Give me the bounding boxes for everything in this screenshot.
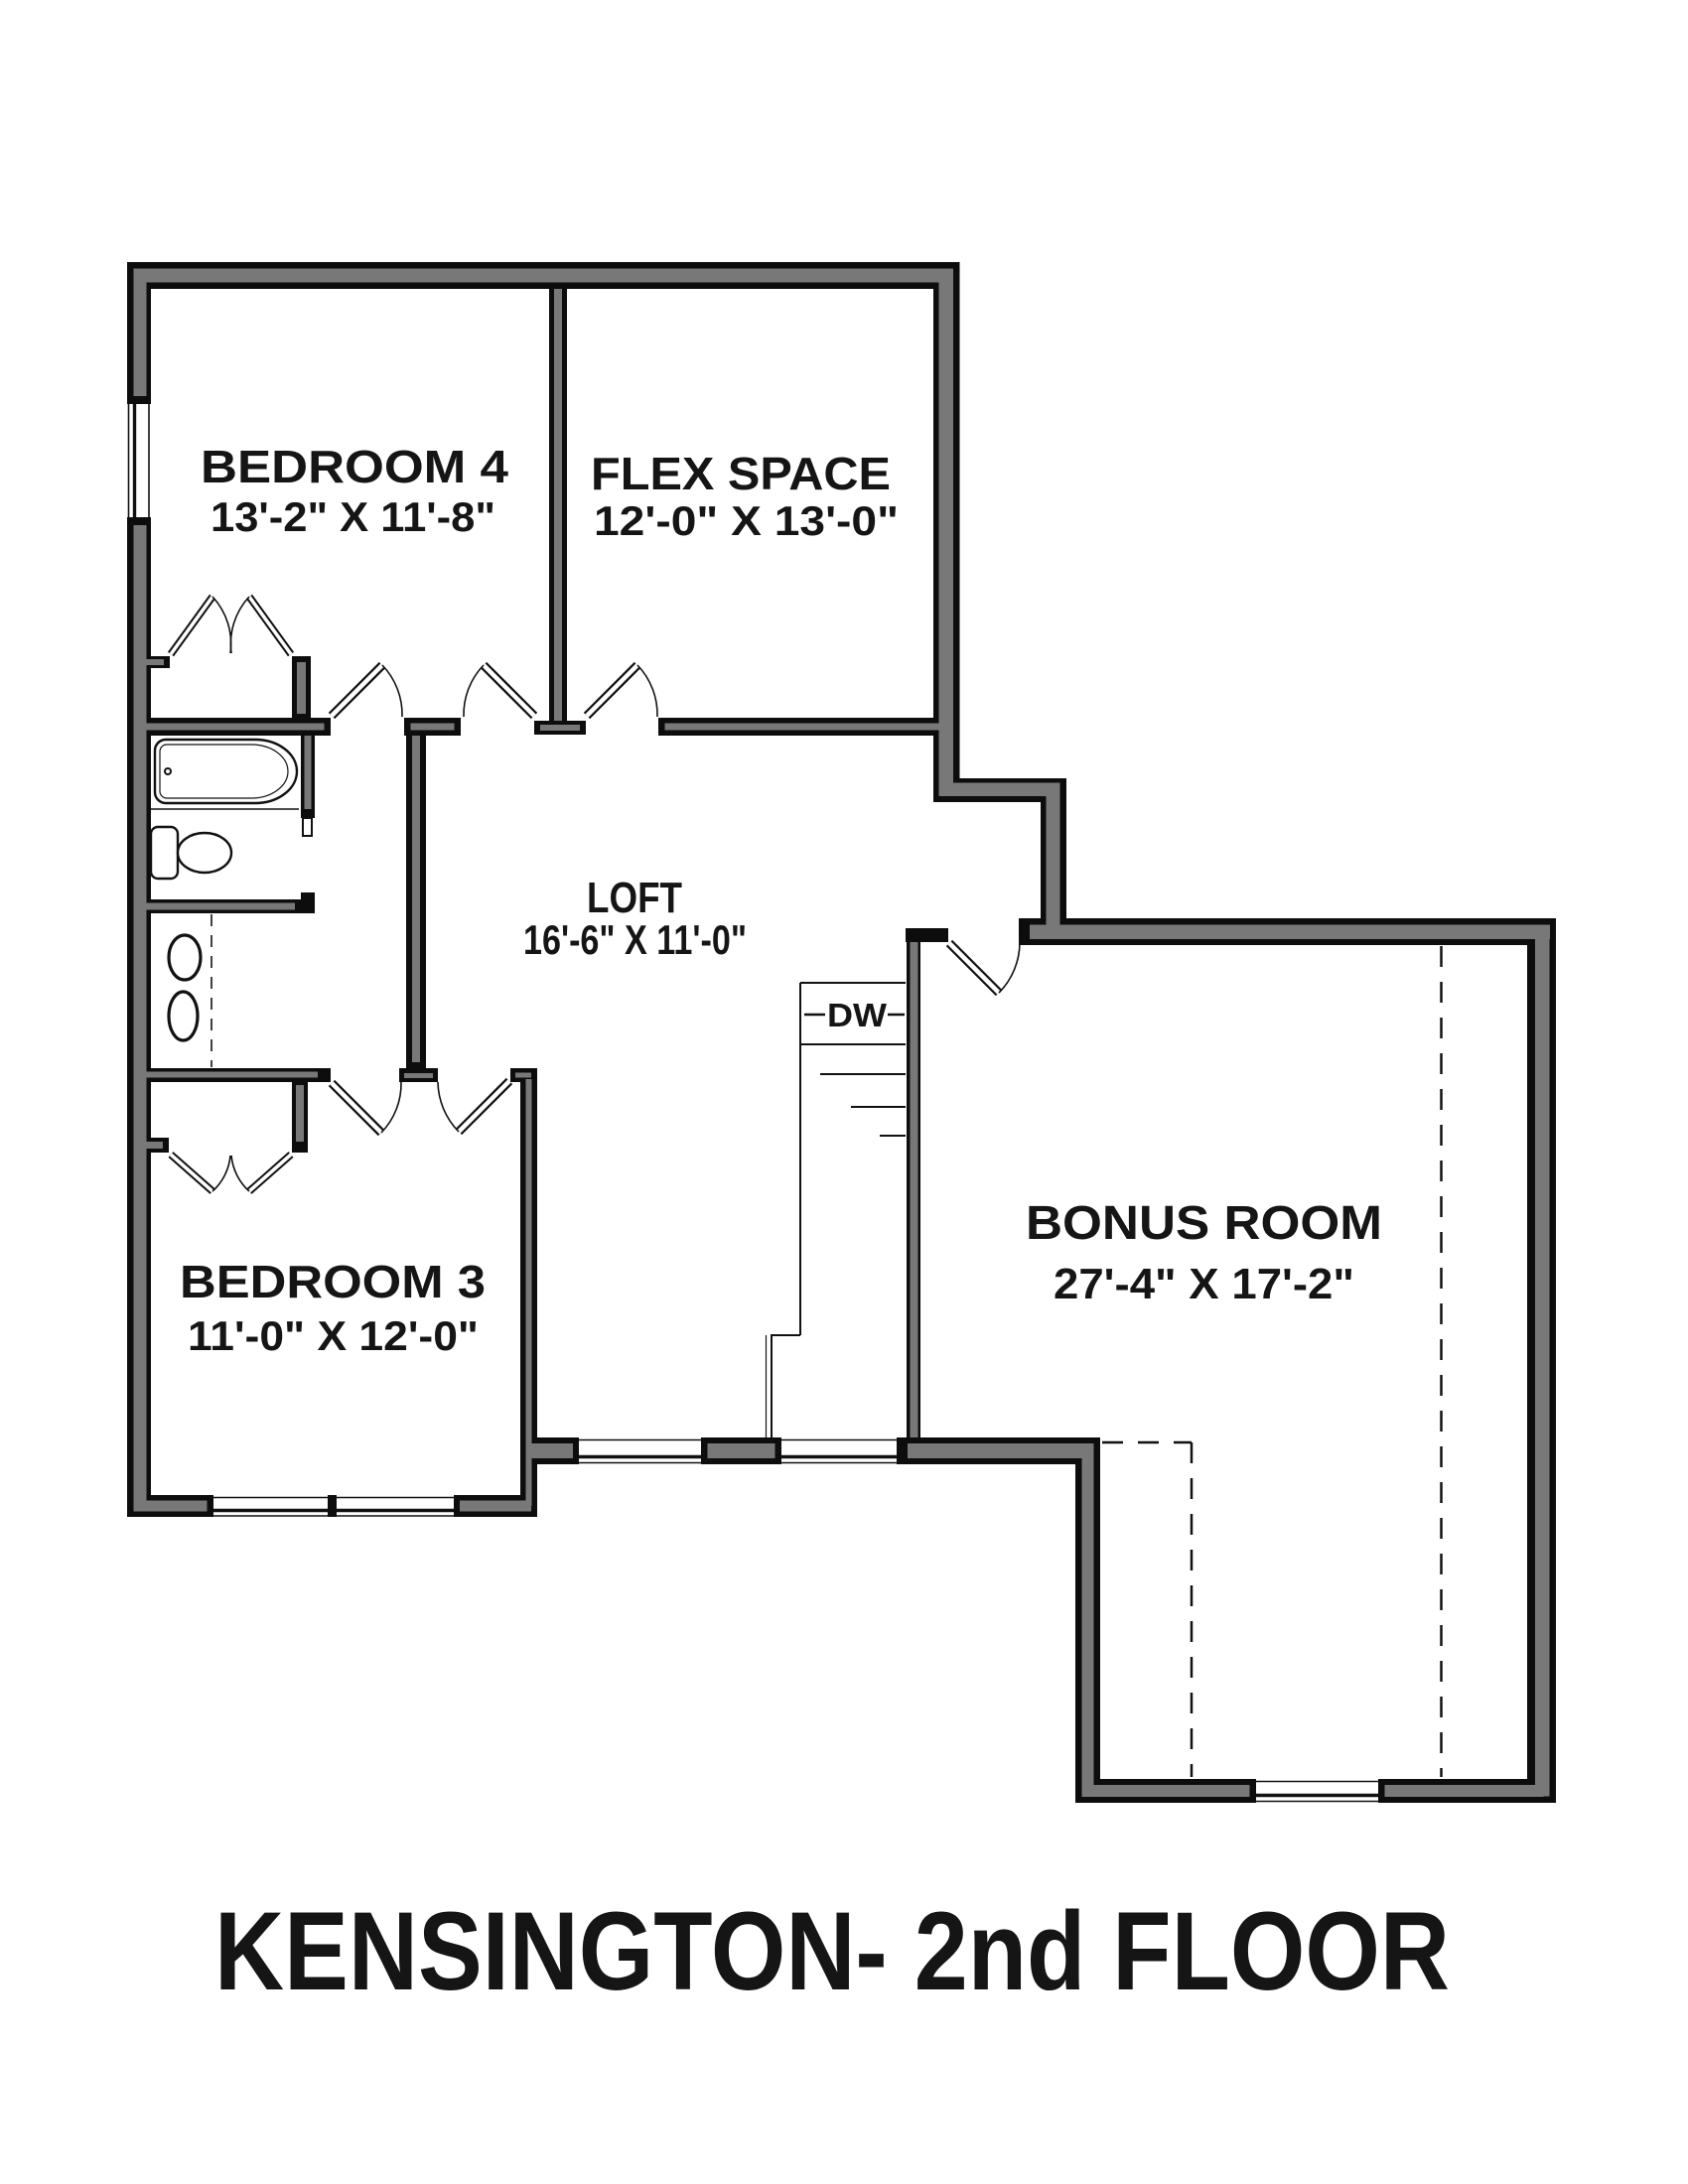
svg-text:11'-0" X 12'-0": 11'-0" X 12'-0": [188, 1312, 479, 1359]
svg-text:BONUS ROOM: BONUS ROOM: [1026, 1197, 1382, 1250]
svg-text:FLEX SPACE: FLEX SPACE: [591, 448, 891, 499]
svg-text:BEDROOM 4: BEDROOM 4: [201, 441, 508, 492]
svg-text:KENSINGTON- 2nd FLOOR: KENSINGTON- 2nd FLOOR: [214, 1889, 1450, 2013]
svg-text:27'-4" X 17'-2": 27'-4" X 17'-2": [1054, 1260, 1354, 1308]
svg-text:DW: DW: [827, 997, 888, 1033]
svg-text:LOFT: LOFT: [587, 874, 682, 922]
svg-text:BEDROOM 3: BEDROOM 3: [180, 1256, 486, 1307]
svg-text:16'-6" X 11'-0": 16'-6" X 11'-0": [523, 916, 747, 963]
svg-text:13'-2" X 11'-8": 13'-2" X 11'-8": [211, 493, 495, 540]
svg-text:12'-0" X 13'-0": 12'-0" X 13'-0": [594, 497, 899, 544]
